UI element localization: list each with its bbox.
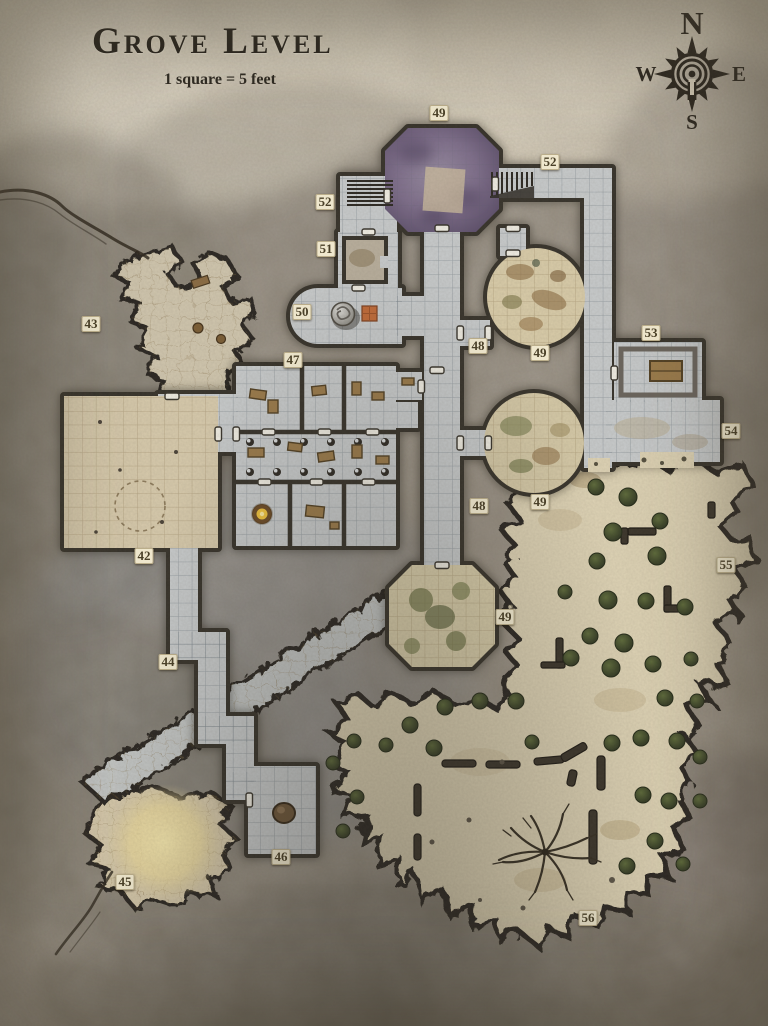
dungeon-map: N E S W: [0, 0, 768, 1026]
dungeon-map-page: N E S W Grove Level 1 square = 5 feet 49…: [0, 0, 768, 1026]
paper-grain-overlay: [0, 0, 768, 1026]
